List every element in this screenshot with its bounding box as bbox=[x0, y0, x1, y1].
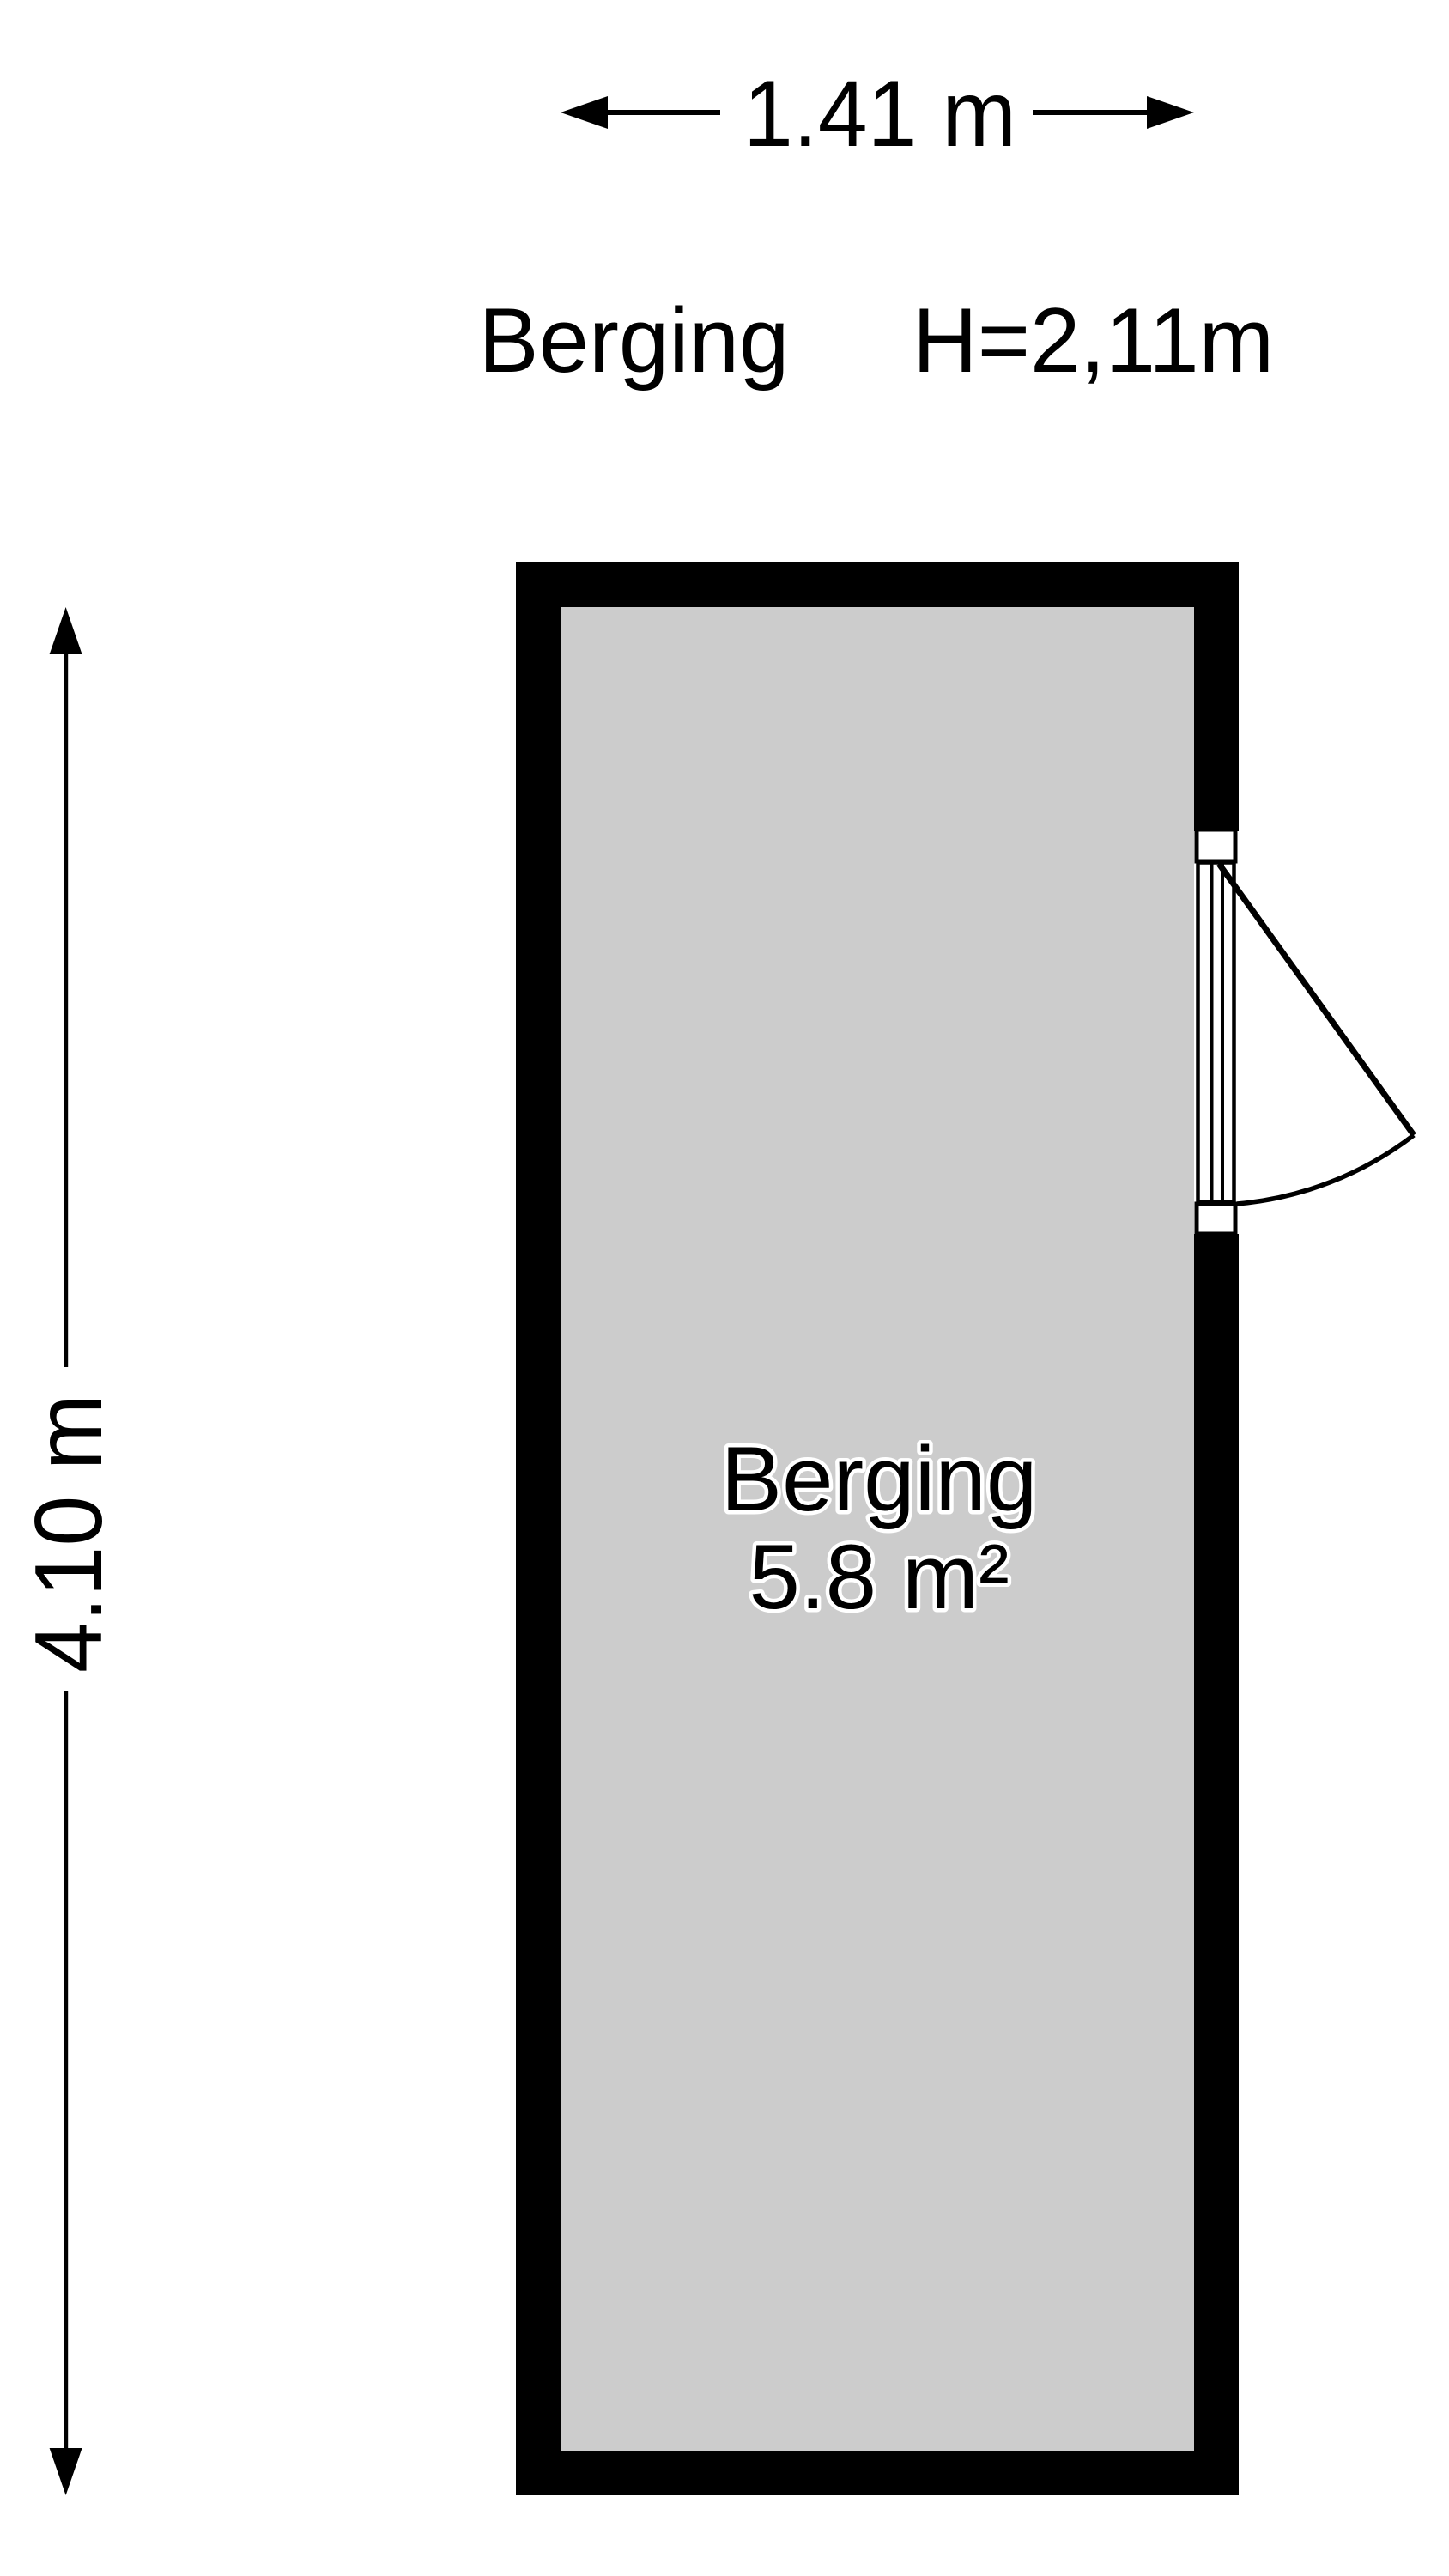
svg-text:Berging: Berging bbox=[479, 289, 790, 392]
svg-text:5.8 m²: 5.8 m² bbox=[749, 1525, 1009, 1628]
svg-text:Berging: Berging bbox=[721, 1427, 1038, 1530]
svg-text:H=2,11m: H=2,11m bbox=[912, 289, 1274, 392]
svg-text:1.41 m: 1.41 m bbox=[743, 61, 1016, 167]
svg-text:4.10 m: 4.10 m bbox=[16, 1394, 123, 1673]
